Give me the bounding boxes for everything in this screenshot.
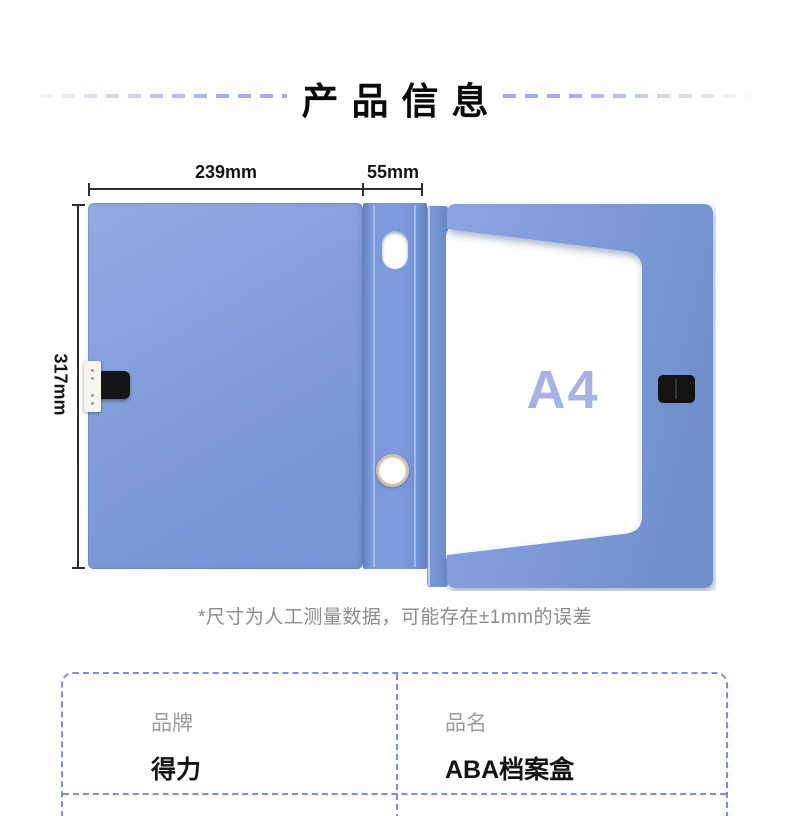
spine-fold-line (373, 205, 375, 567)
velcro-strap (99, 371, 130, 399)
dim-spine-line (364, 188, 423, 190)
dim-tick (88, 183, 90, 196)
dim-height-line (77, 204, 79, 569)
rivet-dot (91, 377, 94, 380)
dim-tick (72, 204, 85, 206)
box-left-wall (427, 206, 448, 587)
dim-spine-label: 55mm (353, 162, 433, 183)
spec-cell-product-name: 品名 ABA档案盒 (445, 707, 574, 786)
spec-table: 品牌 得力 品名 ABA档案盒 (61, 672, 728, 816)
product-info-page: 产品信息 239mm 55mm 317mm (0, 0, 790, 816)
title-dash-right (503, 94, 748, 98)
measurement-note: *尺寸为人工测量数据，可能存在±1mm的误差 (0, 602, 790, 629)
dim-tick (421, 183, 423, 196)
dim-height-label: 317mm (50, 353, 71, 417)
spec-cell-brand: 品牌 得力 (151, 707, 201, 786)
spine-oval-hole (382, 231, 408, 269)
spec-value-brand: 得力 (151, 750, 201, 786)
wall-highlight (428, 207, 430, 586)
dim-width-line (88, 188, 364, 190)
spine-fold-line (414, 205, 416, 567)
rivet-dot (91, 402, 94, 405)
page-title: 产品信息 (0, 71, 790, 125)
rivet-dot (91, 394, 94, 397)
spec-value-product-name: ABA档案盒 (445, 750, 574, 786)
velcro-tab-seam (675, 379, 677, 399)
spec-label-product-name: 品名 (445, 707, 574, 737)
spine-ring-hole (376, 454, 409, 487)
dim-width-label: 239mm (88, 162, 364, 183)
rivet-dot (91, 369, 94, 372)
dim-tick (72, 567, 85, 569)
title-dash-left (40, 94, 287, 98)
paper-size-label: A4 (513, 359, 613, 421)
spec-label-brand: 品牌 (151, 707, 201, 737)
spec-table-row-divider (63, 793, 726, 795)
velcro-clip-plate (84, 361, 101, 412)
